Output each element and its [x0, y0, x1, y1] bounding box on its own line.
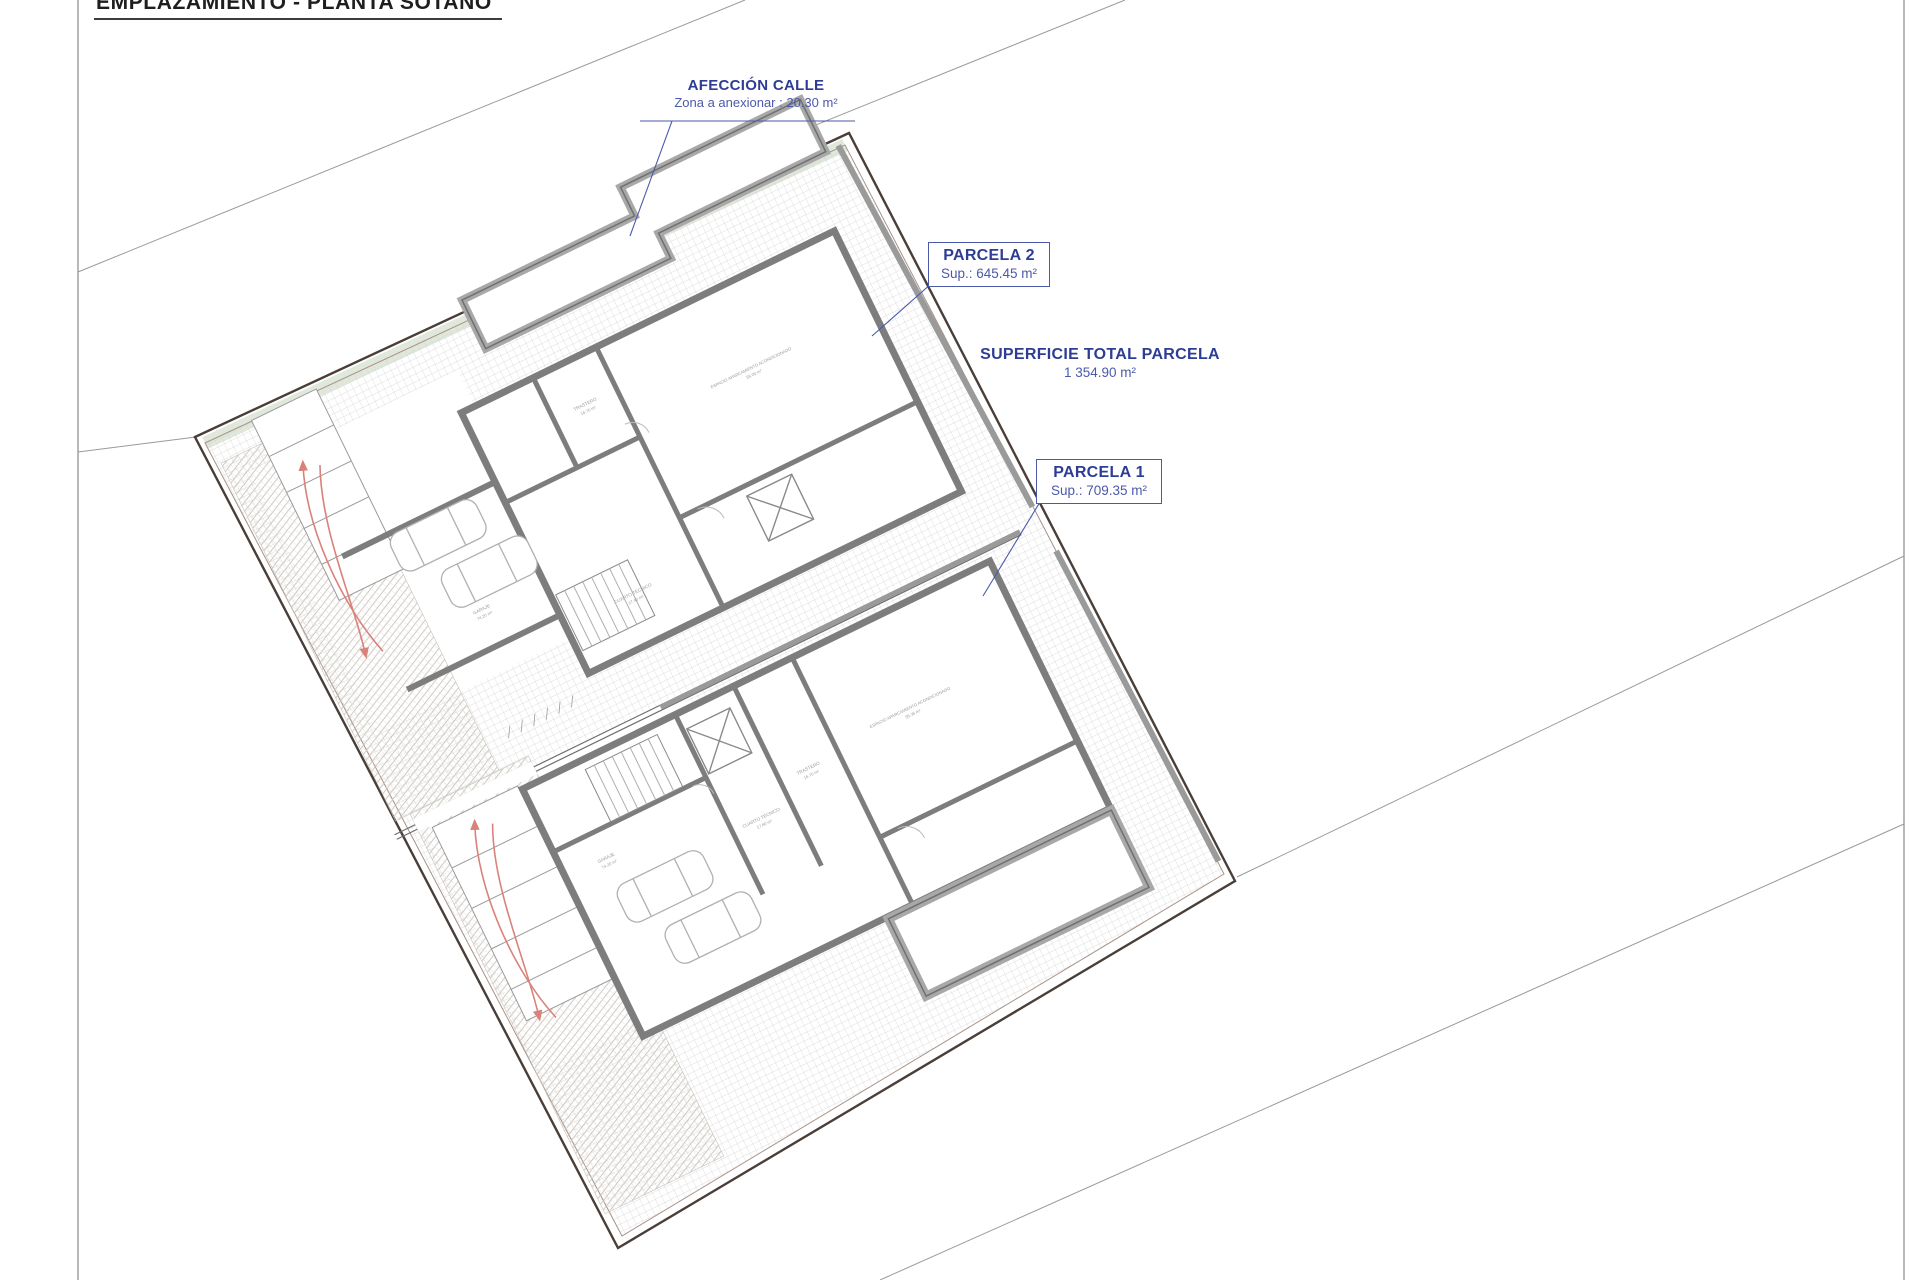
annotation-heading: AFECCIÓN CALLE [626, 77, 886, 94]
annotation-heading: SUPERFICIE TOTAL PARCELA [950, 346, 1250, 364]
annotation-parcela-2: PARCELA 2 Sup.: 645.45 m² [928, 242, 1050, 287]
annotation-detail: Zona a anexionar : 20.30 m² [626, 95, 886, 110]
annotation-heading: PARCELA 2 [937, 247, 1041, 265]
annotation-heading: PARCELA 1 [1045, 464, 1153, 482]
annotation-detail: Sup.: 709.35 m² [1045, 483, 1153, 498]
annotation-parcela-1: PARCELA 1 Sup.: 709.35 m² [1036, 459, 1162, 504]
annotation-detail: 1 354.90 m² [950, 365, 1250, 380]
annotation-detail: Sup.: 645.45 m² [937, 266, 1041, 281]
annotation-superficie-total: SUPERFICIE TOTAL PARCELA 1 354.90 m² [950, 346, 1250, 380]
site-plan-sheet: ESPACIO APARCAMIENTO ACONDICIONADO 56.00… [0, 0, 1920, 1280]
site-plan-drawing: ESPACIO APARCAMIENTO ACONDICIONADO 56.00… [0, 0, 1920, 1280]
page-title: EMPLAZAMIENTO - PLANTA SÓTANO [94, 0, 502, 20]
annotation-afeccion-calle: AFECCIÓN CALLE Zona a anexionar : 20.30 … [626, 77, 886, 110]
